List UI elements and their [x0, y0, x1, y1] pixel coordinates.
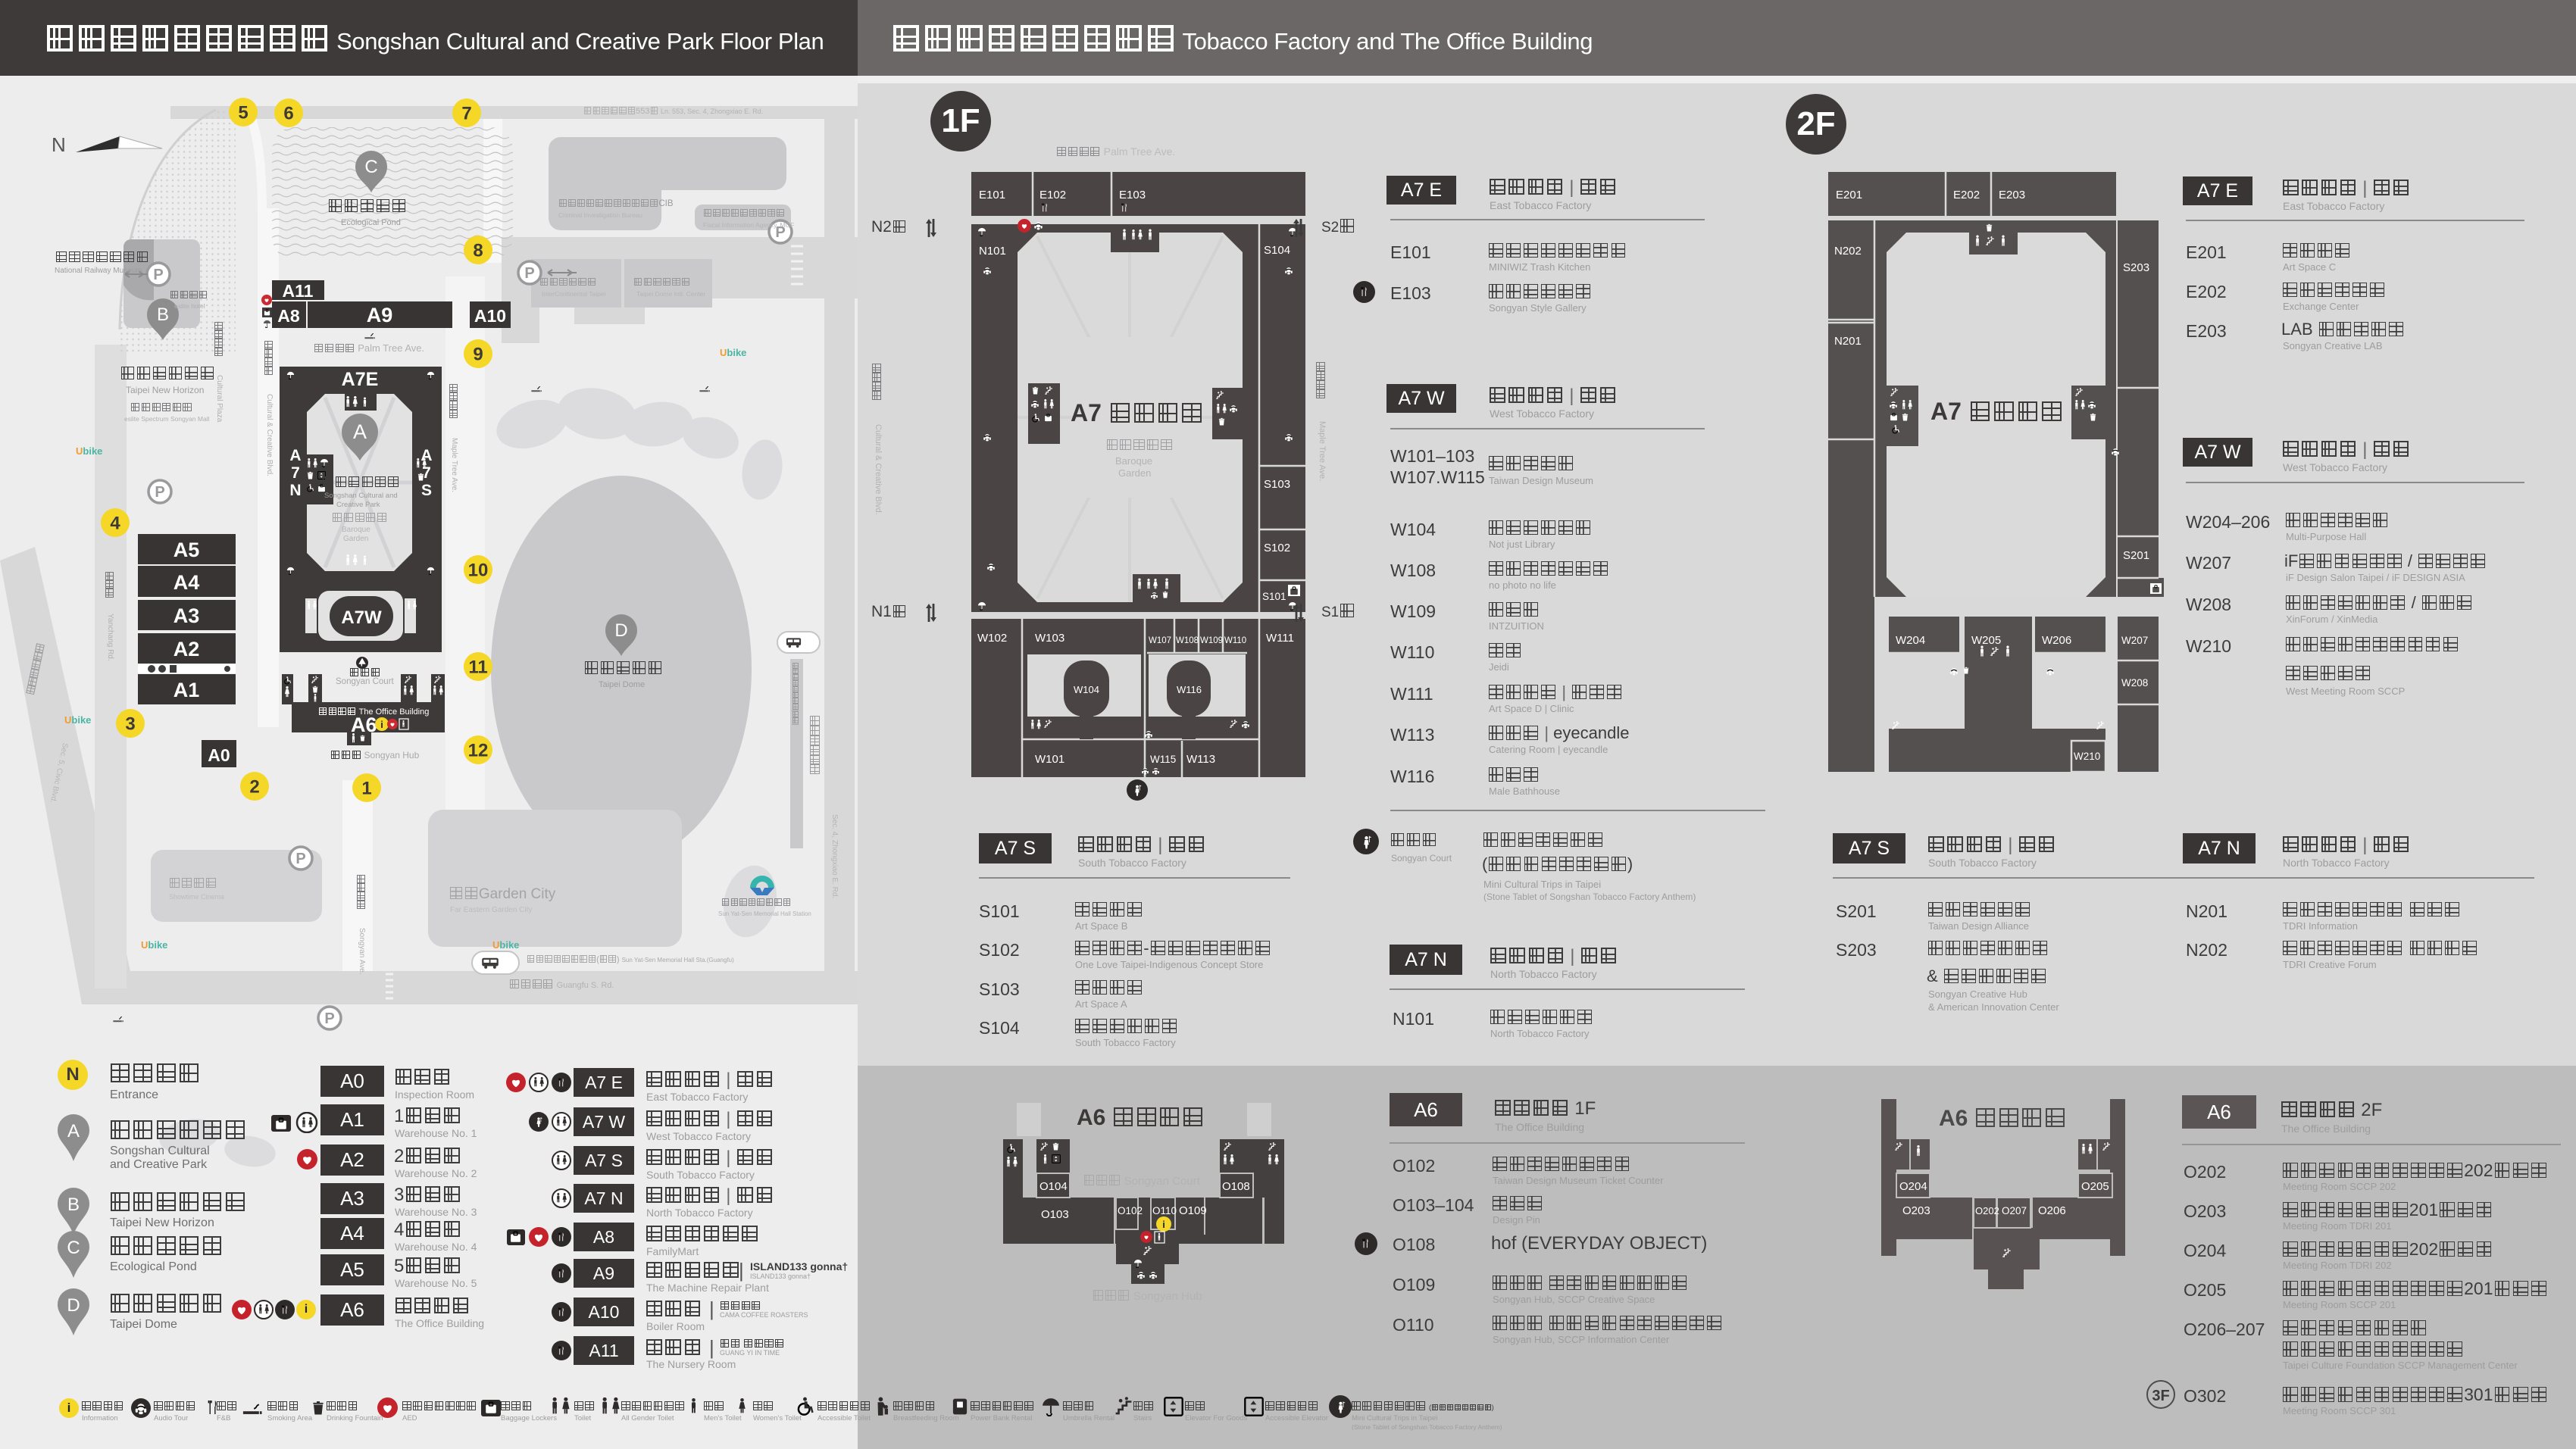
svg-text:N: N [52, 133, 66, 156]
svg-text:A8: A8 [277, 306, 300, 326]
svg-text:O205: O205 [2081, 1180, 2109, 1193]
svg-text:N202: N202 [1834, 245, 1862, 258]
svg-text:O102: O102 [1118, 1205, 1143, 1216]
svg-text:P: P [295, 851, 305, 867]
svg-text:A3: A3 [174, 604, 200, 627]
svg-text:P: P [524, 265, 534, 282]
svg-text:W108: W108 [1176, 636, 1199, 645]
svg-text:S101: S101 [1262, 591, 1286, 602]
svg-text:O203: O203 [1902, 1204, 1930, 1217]
svg-text:A: A [420, 447, 432, 464]
svg-text:5: 5 [238, 103, 248, 123]
svg-text:W103: W103 [1035, 632, 1064, 645]
svg-text:W205: W205 [1971, 634, 2001, 647]
svg-text:E201: E201 [1836, 189, 1862, 201]
svg-text:W207: W207 [2121, 635, 2148, 646]
svg-text:C: C [364, 157, 377, 177]
svg-text:A6: A6 [351, 714, 377, 736]
svg-text:2: 2 [249, 777, 259, 798]
svg-text:O104: O104 [1039, 1180, 1068, 1193]
svg-text:A11: A11 [283, 281, 314, 301]
svg-text:S203: S203 [2123, 261, 2149, 274]
svg-text:A0: A0 [208, 745, 230, 765]
svg-text:3: 3 [125, 714, 135, 735]
svg-text:P: P [324, 1010, 334, 1027]
svg-text:Ubike: Ubike [720, 347, 746, 358]
svg-text:Ubike: Ubike [64, 714, 91, 726]
svg-text:E101: E101 [979, 189, 1005, 201]
svg-text:S104: S104 [1264, 244, 1290, 257]
svg-text:6: 6 [283, 104, 293, 124]
svg-text:Ubike: Ubike [141, 939, 167, 951]
svg-text:S201: S201 [2123, 549, 2149, 562]
svg-text:4: 4 [110, 514, 120, 534]
svg-text:E202: E202 [1953, 189, 1980, 201]
svg-text:O207: O207 [2002, 1205, 2027, 1216]
svg-text:Ubike: Ubike [492, 939, 519, 951]
svg-text:E203: E203 [1999, 189, 2025, 201]
svg-text:8: 8 [473, 241, 483, 261]
svg-text:D: D [614, 620, 627, 641]
svg-text:W101: W101 [1035, 753, 1064, 766]
svg-text:Ubike: Ubike [76, 445, 102, 457]
svg-text:A9: A9 [367, 304, 393, 326]
svg-text:A4: A4 [174, 571, 200, 594]
svg-text:A7E: A7E [342, 369, 379, 390]
svg-text:A7W: A7W [341, 607, 382, 628]
svg-text:W206: W206 [2042, 634, 2071, 647]
svg-text:O202: O202 [1975, 1205, 1999, 1216]
svg-text:W113: W113 [1186, 753, 1215, 766]
svg-text:P: P [155, 484, 164, 501]
svg-text:i: i [1162, 1219, 1165, 1230]
svg-text:D: D [67, 1295, 80, 1316]
svg-text:W104: W104 [1074, 684, 1099, 695]
svg-text:W208: W208 [2121, 677, 2148, 689]
svg-text:A5: A5 [174, 539, 200, 561]
svg-text:W107: W107 [1149, 636, 1171, 645]
svg-text:E103: E103 [1119, 189, 1146, 201]
svg-text:12: 12 [468, 741, 489, 761]
svg-text:N: N [289, 482, 301, 499]
svg-text:7: 7 [291, 464, 300, 482]
svg-text:O108: O108 [1222, 1180, 1250, 1193]
svg-text:W110: W110 [1224, 636, 1246, 645]
svg-text:O103: O103 [1041, 1208, 1069, 1221]
svg-text:W204: W204 [1896, 634, 1925, 647]
svg-text:i: i [380, 719, 383, 730]
svg-text:A2: A2 [174, 638, 200, 660]
svg-text:W210: W210 [2074, 751, 2100, 762]
svg-text:C: C [67, 1238, 80, 1258]
svg-text:E102: E102 [1039, 189, 1066, 201]
svg-text:W111: W111 [1266, 632, 1294, 645]
svg-text:O204: O204 [1899, 1180, 1927, 1193]
svg-text:O109: O109 [1179, 1204, 1207, 1217]
svg-text:1: 1 [361, 779, 371, 799]
svg-text:S103: S103 [1264, 478, 1290, 491]
svg-text:W109: W109 [1200, 636, 1223, 645]
svg-text:11: 11 [468, 657, 487, 678]
svg-text:S: S [421, 482, 432, 499]
svg-text:O206: O206 [2038, 1204, 2066, 1217]
svg-text:B: B [157, 304, 169, 325]
svg-text:7: 7 [422, 464, 431, 482]
svg-text:W102: W102 [977, 632, 1007, 645]
svg-text:P: P [153, 267, 163, 283]
svg-text:N201: N201 [1834, 335, 1862, 348]
svg-text:O110: O110 [1152, 1205, 1177, 1216]
svg-text:W115: W115 [1150, 754, 1176, 765]
svg-text:S102: S102 [1264, 542, 1290, 554]
svg-text:A10: A10 [474, 306, 506, 326]
svg-text:9: 9 [473, 345, 483, 365]
svg-text:W116: W116 [1177, 684, 1202, 695]
svg-text:N101: N101 [979, 245, 1006, 258]
svg-text:7: 7 [461, 104, 471, 124]
svg-text:A1: A1 [174, 679, 200, 701]
svg-text:B: B [67, 1194, 80, 1215]
svg-text:A: A [353, 420, 367, 443]
svg-text:10: 10 [468, 561, 489, 581]
svg-text:A: A [67, 1121, 80, 1141]
svg-text:A: A [289, 447, 301, 464]
